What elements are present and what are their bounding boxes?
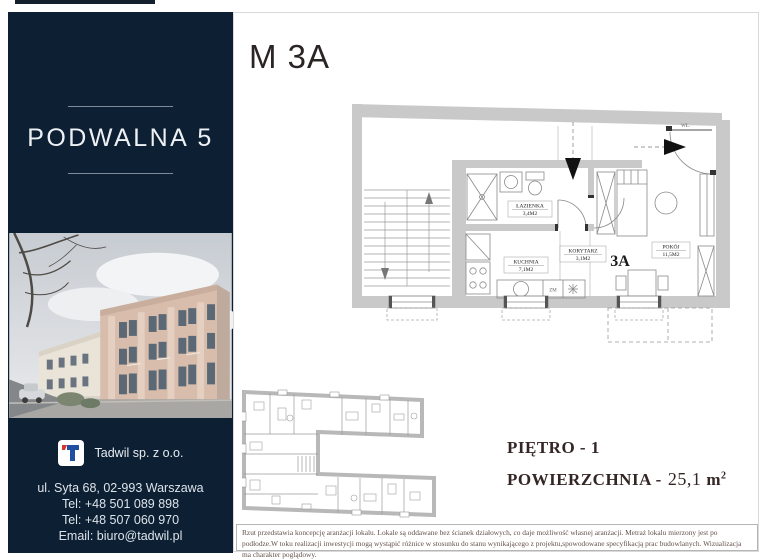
floor-plan-drawing: ZM xyxy=(348,96,750,348)
room-label-room: POKÓJ xyxy=(662,243,680,251)
area-value: 25,1 xyxy=(668,469,702,489)
contact-phone-2: Tel: +48 507 060 970 xyxy=(8,512,233,528)
title-divider-top xyxy=(68,106,173,107)
contact-phone-1: Tel: +48 501 089 898 xyxy=(8,496,233,512)
company-name: Tadwil sp. z o.o. xyxy=(95,446,184,460)
tadwil-logo xyxy=(58,440,84,466)
top-edge-strip xyxy=(15,0,155,4)
plan-partitions xyxy=(558,126,592,296)
area-line: POWIERZCHNIA -25,1m2 xyxy=(507,469,727,490)
area-label: POWIERZCHNIA - xyxy=(507,470,662,489)
room-furniture xyxy=(597,170,714,296)
brochure-page: PODWALNA 5 xyxy=(0,0,768,559)
room-area-kitchen: 7,1M2 xyxy=(519,267,534,273)
unit-title: M 3A xyxy=(249,38,330,76)
unit-info: PIĘTRO - 1 POWIERZCHNIA -25,1m2 xyxy=(507,438,727,490)
disclaimer-text: Rzut przedstawia koncepcję aranżacji lok… xyxy=(236,524,758,551)
room-label-corridor: KORYTARZ xyxy=(568,249,598,255)
project-title: PODWALNA 5 xyxy=(8,124,233,153)
contact-email: Email: biuro@tadwil.pl xyxy=(8,528,233,544)
entrance-label: WŁ. xyxy=(681,124,690,129)
room-area-corridor: 3,1M2 xyxy=(576,256,591,262)
area-unit: m xyxy=(706,470,721,489)
floor-label: PIĘTRO - 1 xyxy=(507,438,727,458)
company-row: Tadwil sp. z o.o. xyxy=(8,440,233,466)
room-area-bathroom: 3,4M2 xyxy=(523,211,538,217)
floor-overview-plan xyxy=(242,388,442,520)
title-divider-bottom xyxy=(68,173,173,174)
staircase xyxy=(364,190,450,286)
dishwasher-mark: ZM xyxy=(549,289,557,294)
contact-block: ul. Syta 68, 02-993 Warszawa Tel: +48 50… xyxy=(8,480,233,544)
contact-address: ul. Syta 68, 02-993 Warszawa xyxy=(8,480,233,496)
sidebar: PODWALNA 5 xyxy=(8,12,233,553)
area-superscript: 2 xyxy=(721,470,727,481)
room-label-kitchen: KUCHNIA xyxy=(513,260,538,266)
unit-badge: 3A xyxy=(610,253,630,270)
building-photo xyxy=(8,233,233,418)
room-label-bathroom: ŁAZIENKA xyxy=(516,204,544,210)
room-area-room: 11,5M2 xyxy=(662,252,679,258)
